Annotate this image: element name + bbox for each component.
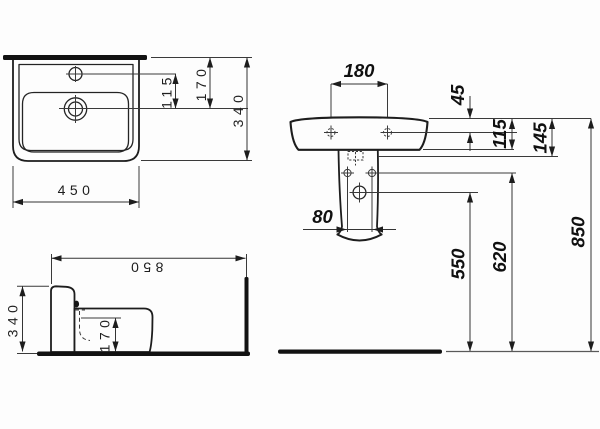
front-dim-rim-height: 850 xyxy=(568,216,589,248)
front-dim-tap-spacing: 180 xyxy=(344,60,376,81)
front-dim-trap-height: 550 xyxy=(448,248,469,280)
front-dim-fixing-height: 620 xyxy=(489,241,510,273)
front-dim-rim-to-holes: 45 xyxy=(447,84,468,106)
front-basin xyxy=(291,117,428,150)
plan-dim-width: 450 xyxy=(58,182,95,198)
side-view: 340 170 850 xyxy=(5,254,251,356)
washbasin-dimension-drawing: 115 170 340 450 340 170 850 180 xyxy=(0,0,600,429)
side-floor-line xyxy=(245,277,249,356)
side-basin-profile xyxy=(75,309,153,353)
side-faucet-detail xyxy=(74,301,79,308)
front-dim-pedestal-holes: 80 xyxy=(312,206,333,227)
front-dim-rim-to-mount: 145 xyxy=(530,122,551,154)
plan-back-rail xyxy=(3,55,147,60)
side-dim-drain-height: 170 xyxy=(97,316,113,353)
side-back-profile xyxy=(51,286,75,352)
side-dim-height: 850 xyxy=(127,260,164,276)
front-view: 180 xyxy=(278,60,599,354)
front-floor-line xyxy=(278,350,442,354)
plan-dim-depth: 340 xyxy=(230,91,246,128)
technical-drawing-page: 115 170 340 450 340 170 850 180 xyxy=(0,0,600,429)
plan-view: 115 170 340 450 xyxy=(3,55,252,208)
side-wall-line xyxy=(37,352,250,357)
front-pedestal xyxy=(338,150,382,241)
side-dim-depth: 340 xyxy=(5,301,21,338)
front-dim-rim-to-apron: 115 xyxy=(489,119,510,149)
plan-dim-rim-to-drain: 170 xyxy=(193,65,209,102)
plan-dim-faucet-to-drain: 115 xyxy=(159,73,175,109)
